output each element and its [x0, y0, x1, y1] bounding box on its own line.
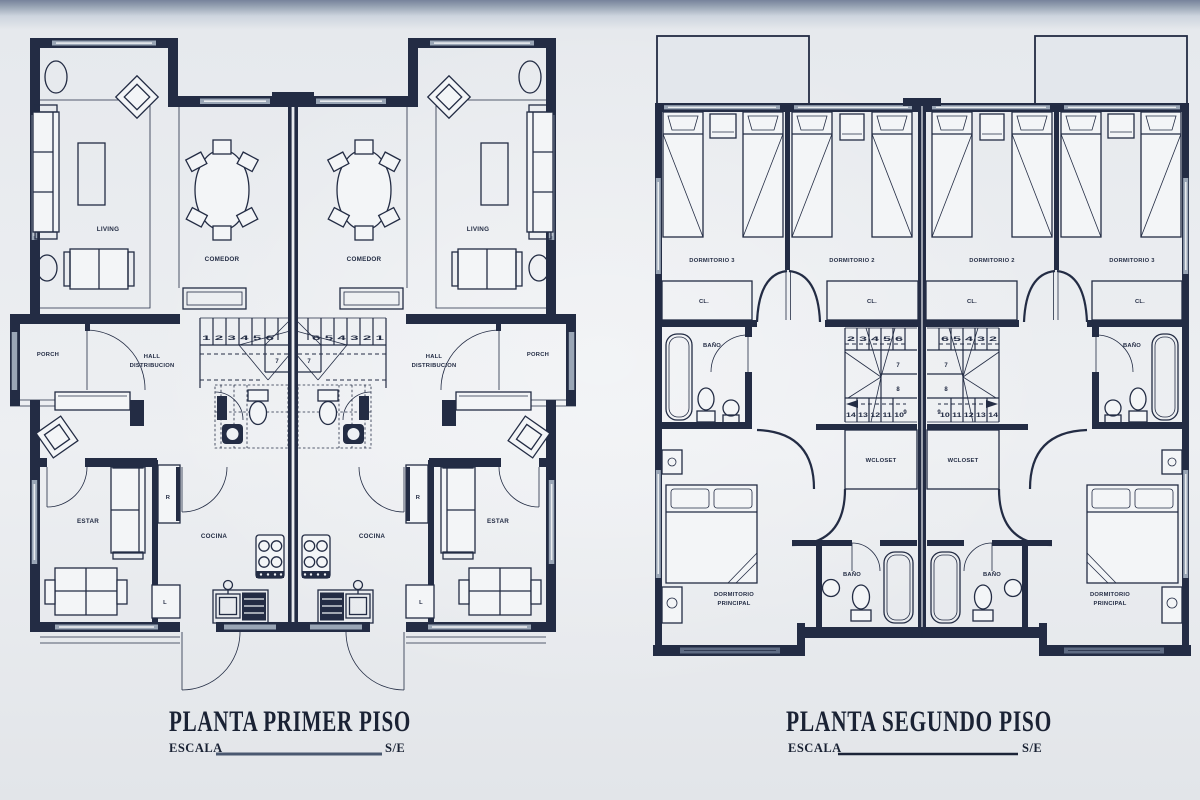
- stair-upper-run-left: 2 3 4 5 6: [847, 337, 905, 343]
- closet-label-2: CL.: [867, 299, 877, 305]
- dorm-principal-left-2: PRINCIPAL: [717, 601, 750, 607]
- wcloset-label-right: WCLOSET: [948, 458, 979, 464]
- bath-label-lower-right: BAÑO: [983, 571, 1001, 578]
- fixture-label-laundry-left: L: [163, 600, 167, 606]
- room-label-porch-right: PORCH: [527, 352, 549, 358]
- room-label-dorm3-left: DORMITORIO 3: [689, 258, 735, 264]
- fixture-label-fridge-right: R: [416, 495, 421, 501]
- stair-lower-run-left: 14 13 12 11 10: [846, 413, 905, 419]
- closet-label-4: CL.: [1135, 299, 1145, 305]
- room-label-cocina-left: COCINA: [201, 533, 228, 540]
- stair-step7-left: 7: [896, 363, 900, 369]
- room-label-dorm2-left: DORMITORIO 2: [829, 258, 874, 264]
- room-label-living-right: LIVING: [467, 226, 490, 233]
- stair-step7-right: 7: [944, 363, 948, 369]
- second-floor-unit-left: [653, 36, 926, 656]
- second-floor-title: PLANTA SEGUNDO PISO: [786, 705, 1052, 738]
- stair-upper-run-right: 6 5 4 3 2: [941, 337, 999, 343]
- closet-label-1: CL.: [699, 299, 709, 305]
- blueprint-sheet: LIVING LIVING COMEDOR COMEDOR PORCH PORC…: [0, 0, 1200, 800]
- room-label-estar-left: ESTAR: [77, 518, 99, 525]
- stair-step8-right: 8: [944, 387, 948, 393]
- room-label-living-left: LIVING: [97, 226, 120, 233]
- bath-label-lower-left: BAÑO: [843, 571, 861, 578]
- room-label-hall-right-2: DISTRIBUCION: [412, 363, 457, 369]
- first-floor-scale-label: ESCALA: [169, 741, 223, 755]
- second-floor-scale-value: S/E: [1022, 741, 1042, 755]
- stair-lower-run-right: 10 11 12 13 14: [940, 413, 999, 419]
- room-label-dorm3-right: DORMITORIO 3: [1109, 258, 1155, 264]
- room-label-hall-left-1: HALL: [144, 354, 161, 360]
- bath-label-upper-left: BAÑO: [703, 342, 721, 349]
- second-floor-unit-right: [918, 36, 1191, 656]
- stair-numbers-right: 6 5 4 3 2 1: [312, 336, 386, 342]
- room-label-hall-right-1: HALL: [426, 354, 443, 360]
- wcloset-label-left: WCLOSET: [866, 458, 897, 464]
- room-label-dorm2-right: DORMITORIO 2: [969, 258, 1014, 264]
- dorm-principal-right-2: PRINCIPAL: [1093, 601, 1126, 607]
- room-label-porch-left: PORCH: [37, 352, 59, 358]
- dorm-principal-left-1: DORMITORIO: [714, 592, 754, 598]
- stair-step8-left: 8: [896, 387, 900, 393]
- fixture-label-laundry-right: L: [419, 600, 423, 606]
- closet-label-3: CL.: [967, 299, 977, 305]
- room-label-comedor-left: COMEDOR: [205, 256, 240, 263]
- room-label-estar-right: ESTAR: [487, 518, 509, 525]
- room-label-comedor-right: COMEDOR: [347, 256, 382, 263]
- fixture-label-fridge-left: R: [166, 495, 171, 501]
- first-floor-title: PLANTA PRIMER PISO: [169, 705, 411, 738]
- first-floor-plan: LIVING LIVING COMEDOR COMEDOR PORCH PORC…: [10, 38, 576, 755]
- room-label-cocina-right: COCINA: [359, 533, 386, 540]
- second-floor-scale-label: ESCALA: [788, 741, 842, 755]
- stair-numbers-left: 1 2 3 4 5 6: [202, 336, 276, 342]
- second-floor-plan: DORMITORIO 3 DORMITORIO 2 DORMITORIO 2 D…: [653, 36, 1191, 755]
- stair-step7-left: 7: [275, 359, 279, 365]
- dorm-principal-right-1: DORMITORIO: [1090, 592, 1130, 598]
- stair-step7-right: 7: [307, 359, 311, 365]
- room-label-hall-left-2: DISTRIBUCION: [130, 363, 175, 369]
- bath-label-upper-right: BAÑO: [1123, 342, 1141, 349]
- first-floor-scale-value: S/E: [385, 741, 405, 755]
- floor-plans-drawing: LIVING LIVING COMEDOR COMEDOR PORCH PORC…: [0, 0, 1200, 800]
